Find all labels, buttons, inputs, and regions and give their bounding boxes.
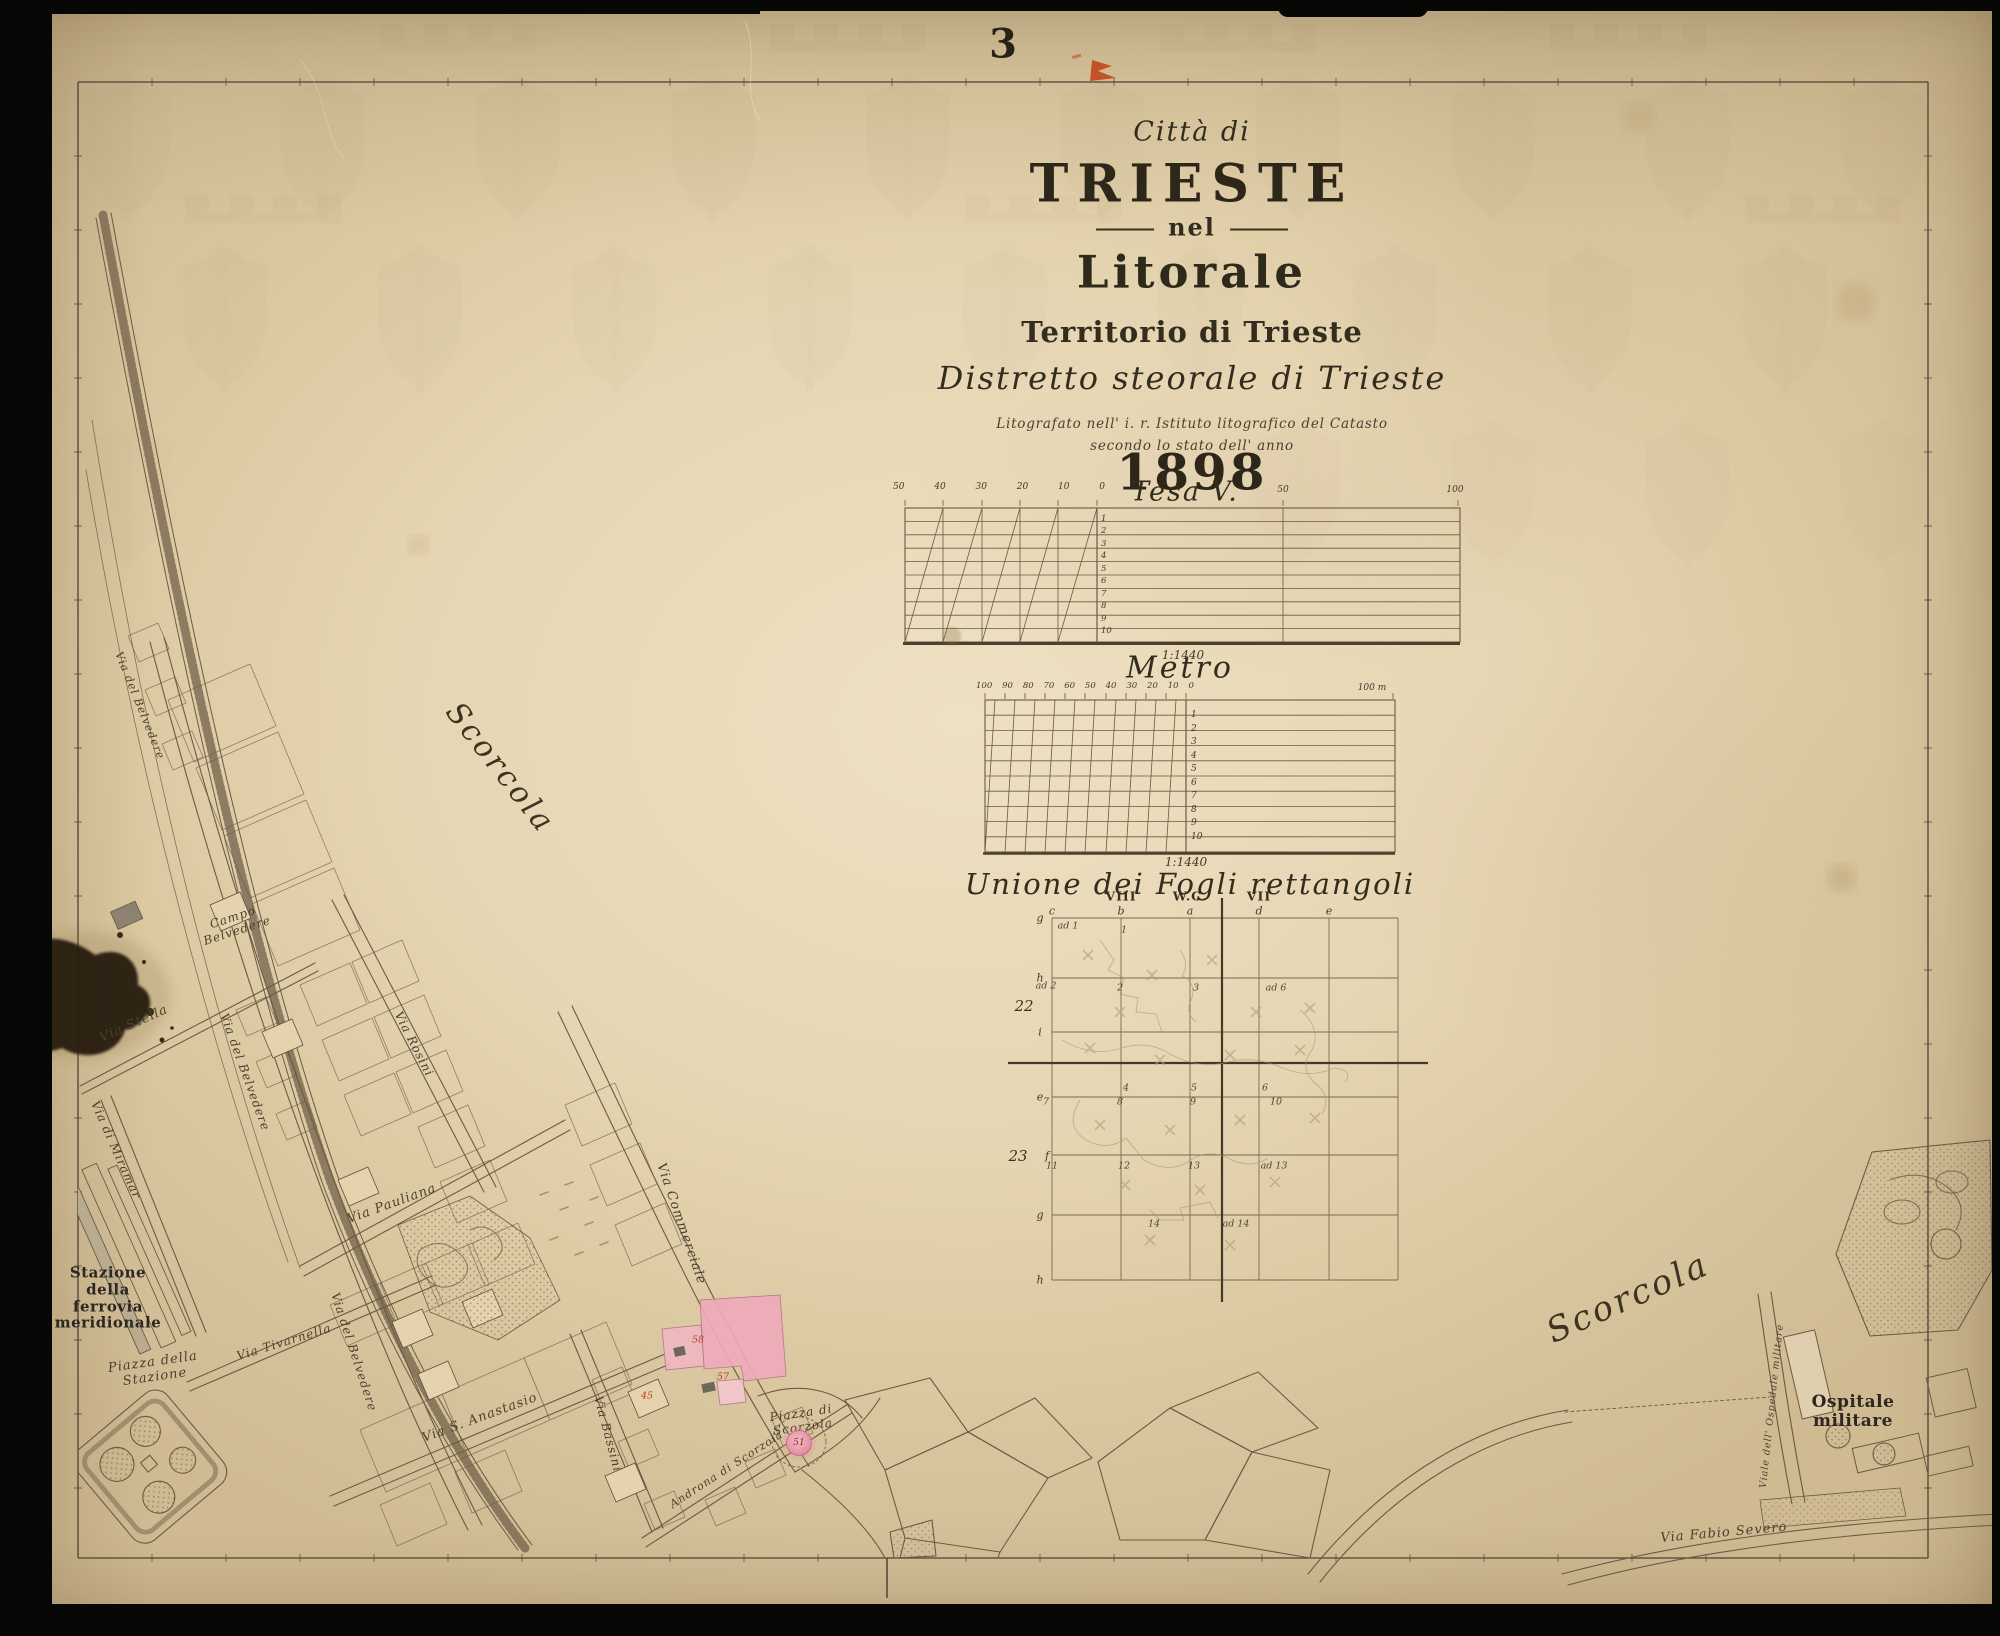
photo-edge-left — [0, 0, 52, 1636]
photo-edge-bottom — [0, 1604, 2000, 1636]
scale-bar-metro — [983, 693, 1395, 854]
photo-edge-top-left — [0, 0, 760, 14]
orange-stamp-mark — [1090, 60, 1116, 81]
pink-highlighted-buildings — [662, 1295, 786, 1405]
city-map-right — [1098, 1140, 1998, 1585]
city-map-left — [58, 213, 1092, 1558]
index-diagram-grid — [1008, 898, 1428, 1302]
photo-edge-notch — [1278, 0, 1428, 17]
paper-watermark-shields — [86, 24, 1925, 567]
photo-edge-right — [1992, 0, 2000, 1636]
map-artwork — [0, 0, 2000, 1636]
scanned-map-photo: 3 Città di TRIESTE nel Litorale Territor… — [0, 0, 2000, 1636]
scale-bar-tesa — [903, 500, 1460, 644]
